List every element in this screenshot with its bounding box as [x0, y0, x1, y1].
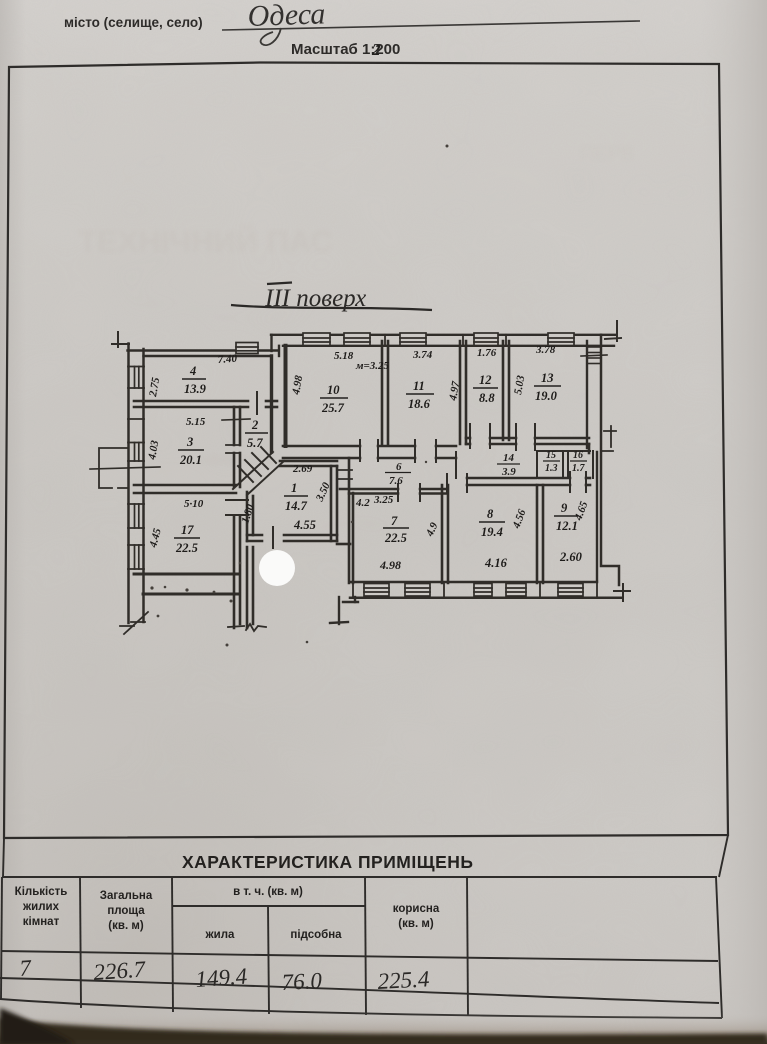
svg-text:місто (селище, село): місто (селище, село) — [64, 15, 203, 30]
svg-text:2: 2 — [371, 40, 381, 59]
svg-text:15: 15 — [546, 450, 556, 461]
svg-text:11: 11 — [413, 379, 425, 393]
svg-text:Одеса: Одеса — [247, 0, 326, 33]
svg-text:13: 13 — [541, 371, 554, 385]
svg-text:ПЕРВ: ПЕРВ — [580, 143, 634, 165]
svg-text:жилих: жилих — [22, 901, 60, 913]
svg-text:4.55: 4.55 — [293, 518, 316, 532]
svg-text:Загальна: Загальна — [100, 890, 153, 902]
svg-text:ТЕХНІЧНИЙ ПАС: ТЕХНІЧНИЙ ПАС — [78, 223, 333, 259]
svg-text:1.76: 1.76 — [477, 347, 497, 359]
svg-text:19.0: 19.0 — [535, 389, 558, 403]
svg-text:14.7: 14.7 — [285, 499, 308, 513]
svg-text:12.1: 12.1 — [556, 519, 578, 533]
svg-text:12: 12 — [479, 373, 492, 387]
svg-text:20.1: 20.1 — [179, 453, 202, 467]
svg-text:226.7: 226.7 — [93, 956, 148, 985]
svg-text:25.7: 25.7 — [321, 401, 345, 415]
svg-text:8.8: 8.8 — [479, 391, 495, 405]
svg-text:13.9: 13.9 — [184, 382, 207, 396]
svg-text:225.4: 225.4 — [377, 966, 430, 994]
svg-text:5.18: 5.18 — [334, 350, 354, 362]
svg-text:підсобна: підсобна — [290, 929, 342, 941]
svg-text:5.15: 5.15 — [186, 416, 206, 428]
svg-text:14: 14 — [503, 452, 515, 464]
svg-text:6: 6 — [396, 461, 402, 473]
svg-text:площа: площа — [107, 905, 145, 917]
svg-text:1: 1 — [291, 481, 297, 495]
svg-text:10: 10 — [327, 383, 340, 397]
svg-text:2: 2 — [251, 418, 258, 432]
svg-text:4.2: 4.2 — [355, 497, 370, 509]
svg-text:8: 8 — [487, 507, 494, 521]
svg-text:2.60: 2.60 — [559, 550, 583, 564]
svg-text:9: 9 — [561, 501, 568, 515]
svg-text:149.4: 149.4 — [195, 963, 248, 992]
svg-text:1.3: 1.3 — [545, 463, 558, 474]
svg-text:в т. ч. (кв. м): в т. ч. (кв. м) — [233, 886, 303, 898]
svg-text:жила: жила — [205, 929, 236, 941]
svg-text:3.25: 3.25 — [373, 494, 394, 506]
svg-text:4: 4 — [189, 364, 196, 378]
svg-text:2.69: 2.69 — [292, 463, 313, 475]
svg-text:4.98: 4.98 — [379, 558, 401, 572]
svg-text:7.40: 7.40 — [217, 353, 238, 366]
svg-text:3: 3 — [186, 435, 193, 449]
svg-text:3.74: 3.74 — [412, 349, 433, 361]
svg-text:1.7: 1.7 — [572, 463, 586, 474]
svg-text:76.0: 76.0 — [281, 968, 323, 995]
svg-text:19.4: 19.4 — [481, 525, 503, 539]
svg-text:22.5: 22.5 — [384, 531, 407, 545]
svg-text:17: 17 — [181, 523, 194, 537]
svg-text:Кількість: Кількість — [15, 886, 68, 898]
svg-text:5·10: 5·10 — [184, 498, 204, 510]
svg-text:5.7: 5.7 — [247, 436, 263, 450]
svg-text:18.6: 18.6 — [408, 397, 431, 411]
svg-text:4.16: 4.16 — [484, 556, 508, 570]
svg-text:(кв. м): (кв. м) — [108, 920, 144, 932]
svg-text:3.9: 3.9 — [501, 466, 516, 478]
svg-text:3.78: 3.78 — [535, 344, 556, 356]
svg-text:кімнат: кімнат — [23, 916, 60, 928]
svg-text:Масштаб 1:200: Масштаб 1:200 — [291, 41, 400, 58]
svg-text:м=3.25: м=3.25 — [355, 360, 390, 372]
svg-text:ХАРАКТЕРИСТИКА ПРИМІЩЕНЬ: ХАРАКТЕРИСТИКА ПРИМІЩЕНЬ — [182, 852, 473, 872]
svg-text:7.6: 7.6 — [389, 475, 403, 487]
svg-text:22.5: 22.5 — [175, 541, 198, 555]
svg-text:корисна: корисна — [393, 903, 440, 915]
svg-text:(кв. м): (кв. м) — [398, 918, 434, 930]
svg-text:16: 16 — [573, 450, 583, 461]
svg-text:7: 7 — [391, 514, 398, 528]
